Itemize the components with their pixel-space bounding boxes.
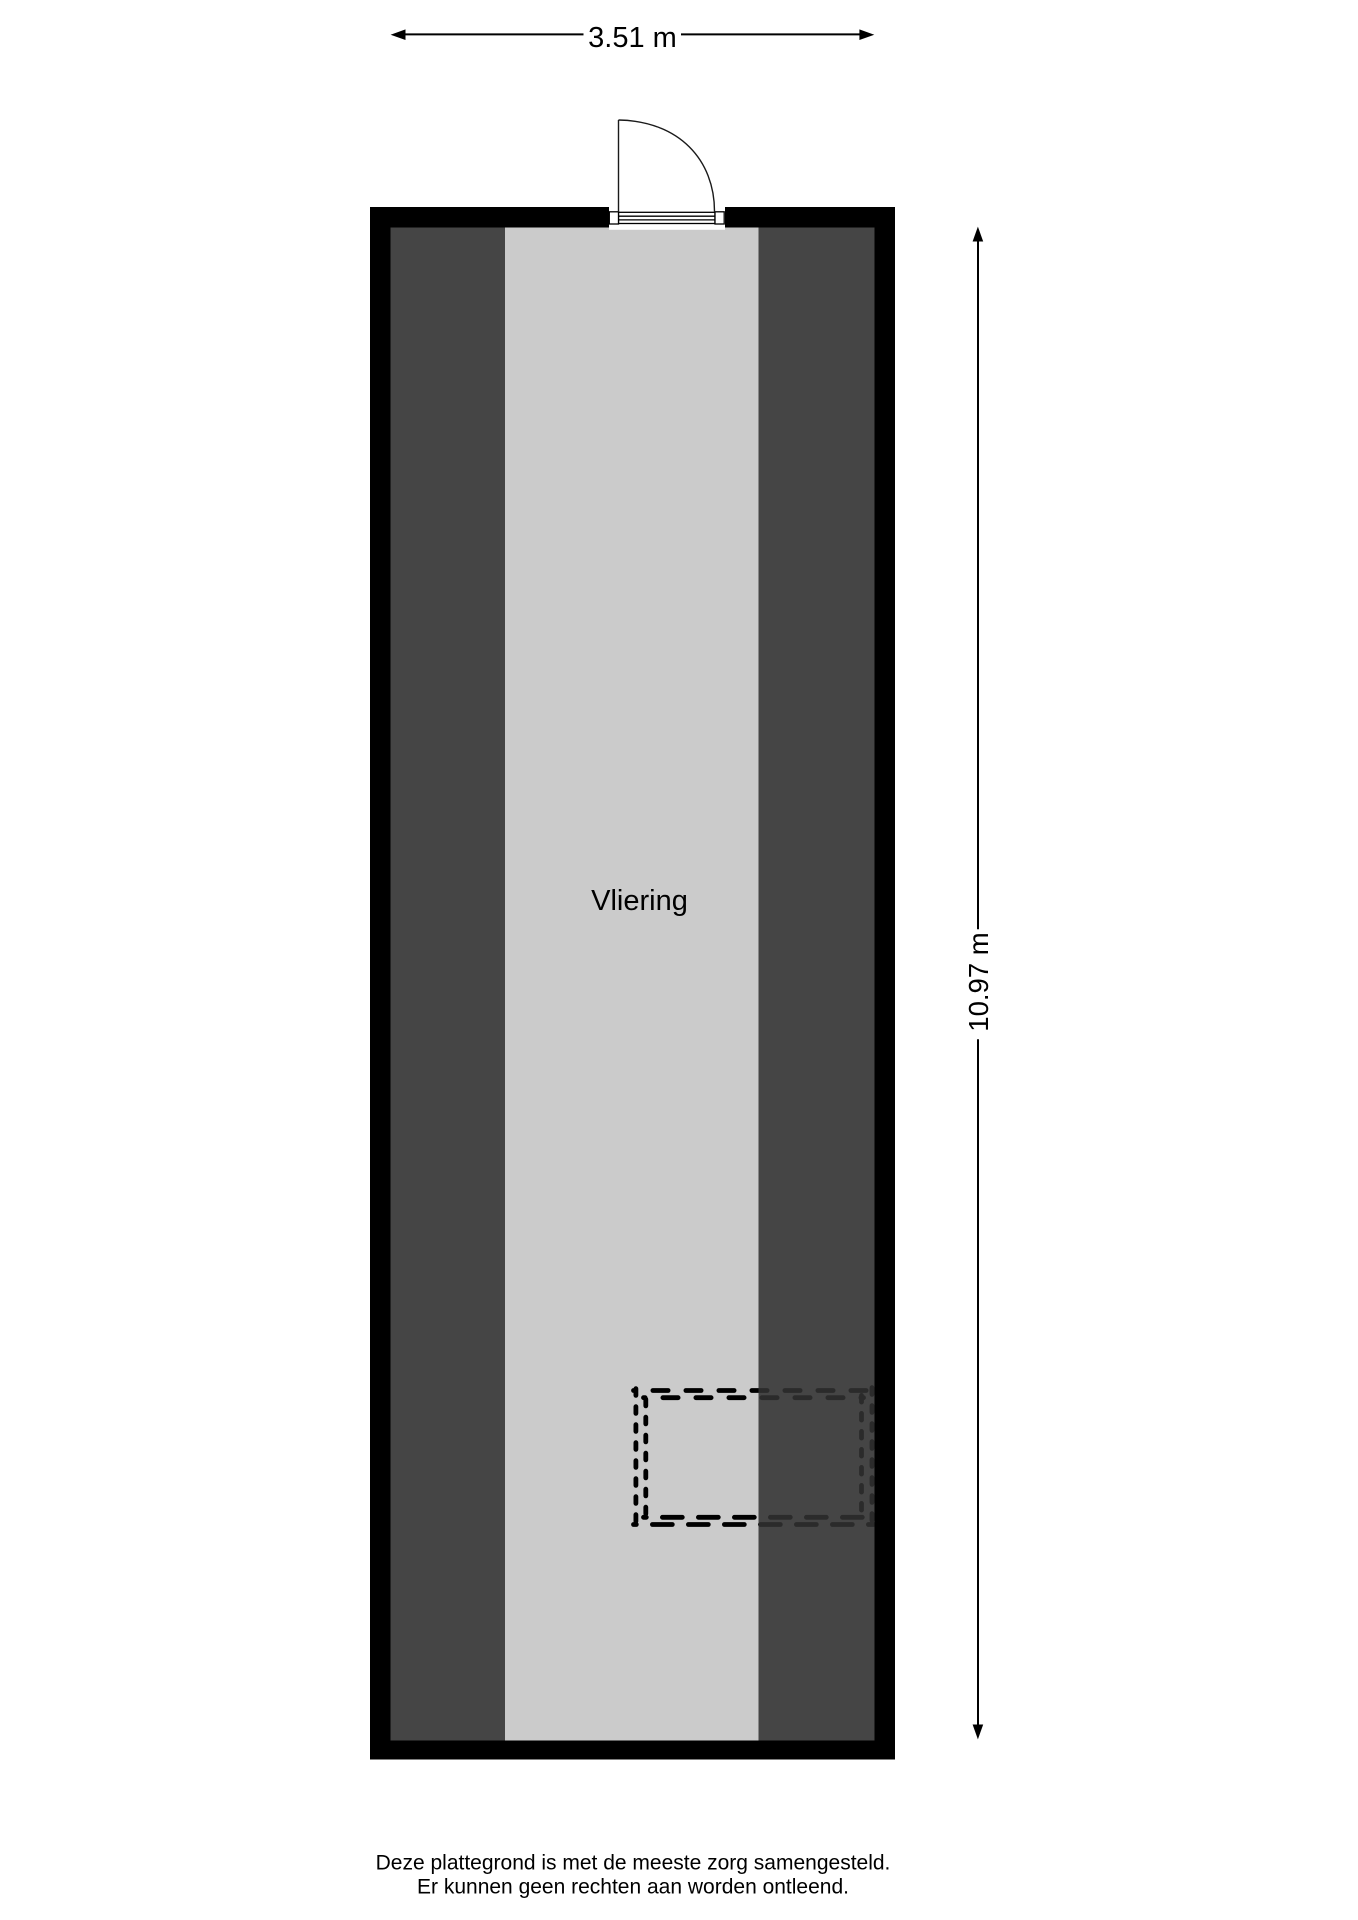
svg-text:Deze plattegrond is met de mee: Deze plattegrond is met de meeste zorg s… [376,1852,891,1875]
svg-text:Er kunnen geen rechten aan wor: Er kunnen geen rechten aan worden ontlee… [417,1876,849,1899]
svg-text:Vliering: Vliering [591,885,688,917]
svg-text:3.51 m: 3.51 m [588,22,677,54]
svg-text:10.97 m: 10.97 m [963,932,994,1031]
